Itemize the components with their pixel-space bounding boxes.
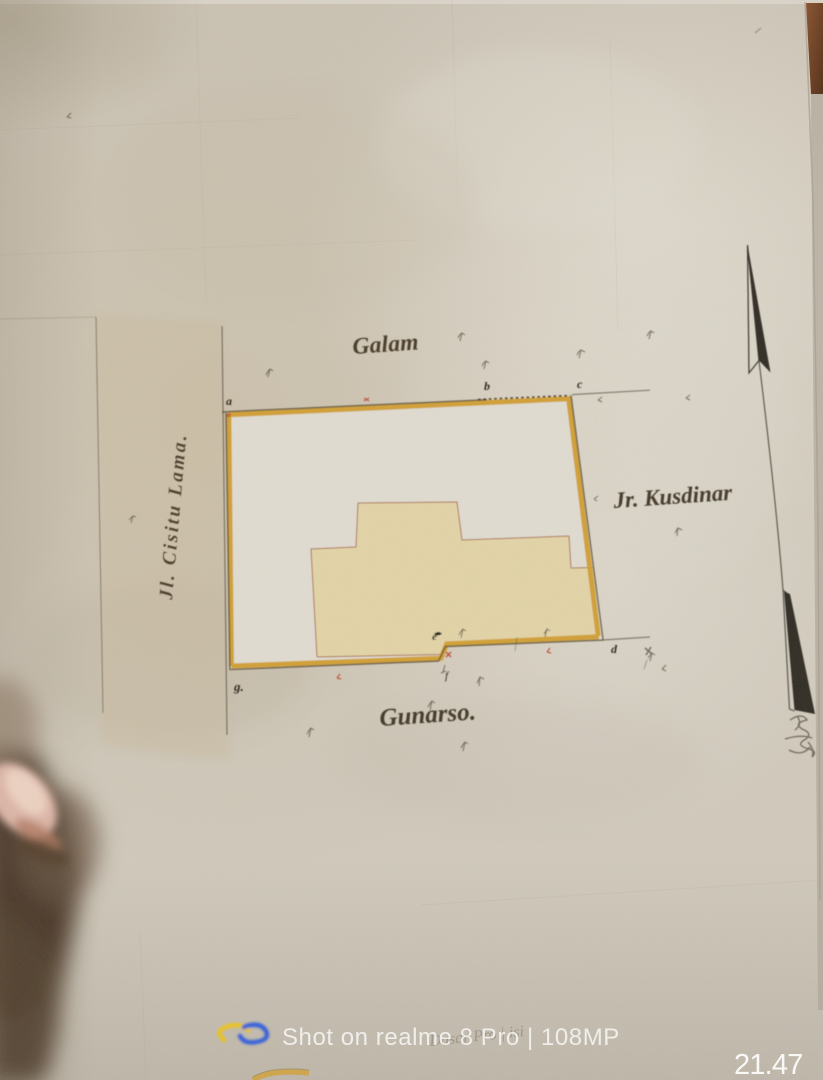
svg-text:21.47: 21.47 bbox=[734, 1049, 803, 1080]
svg-text:Shot on realme 8 Pro | 108MP: Shot on realme 8 Pro | 108MP bbox=[282, 1024, 620, 1051]
